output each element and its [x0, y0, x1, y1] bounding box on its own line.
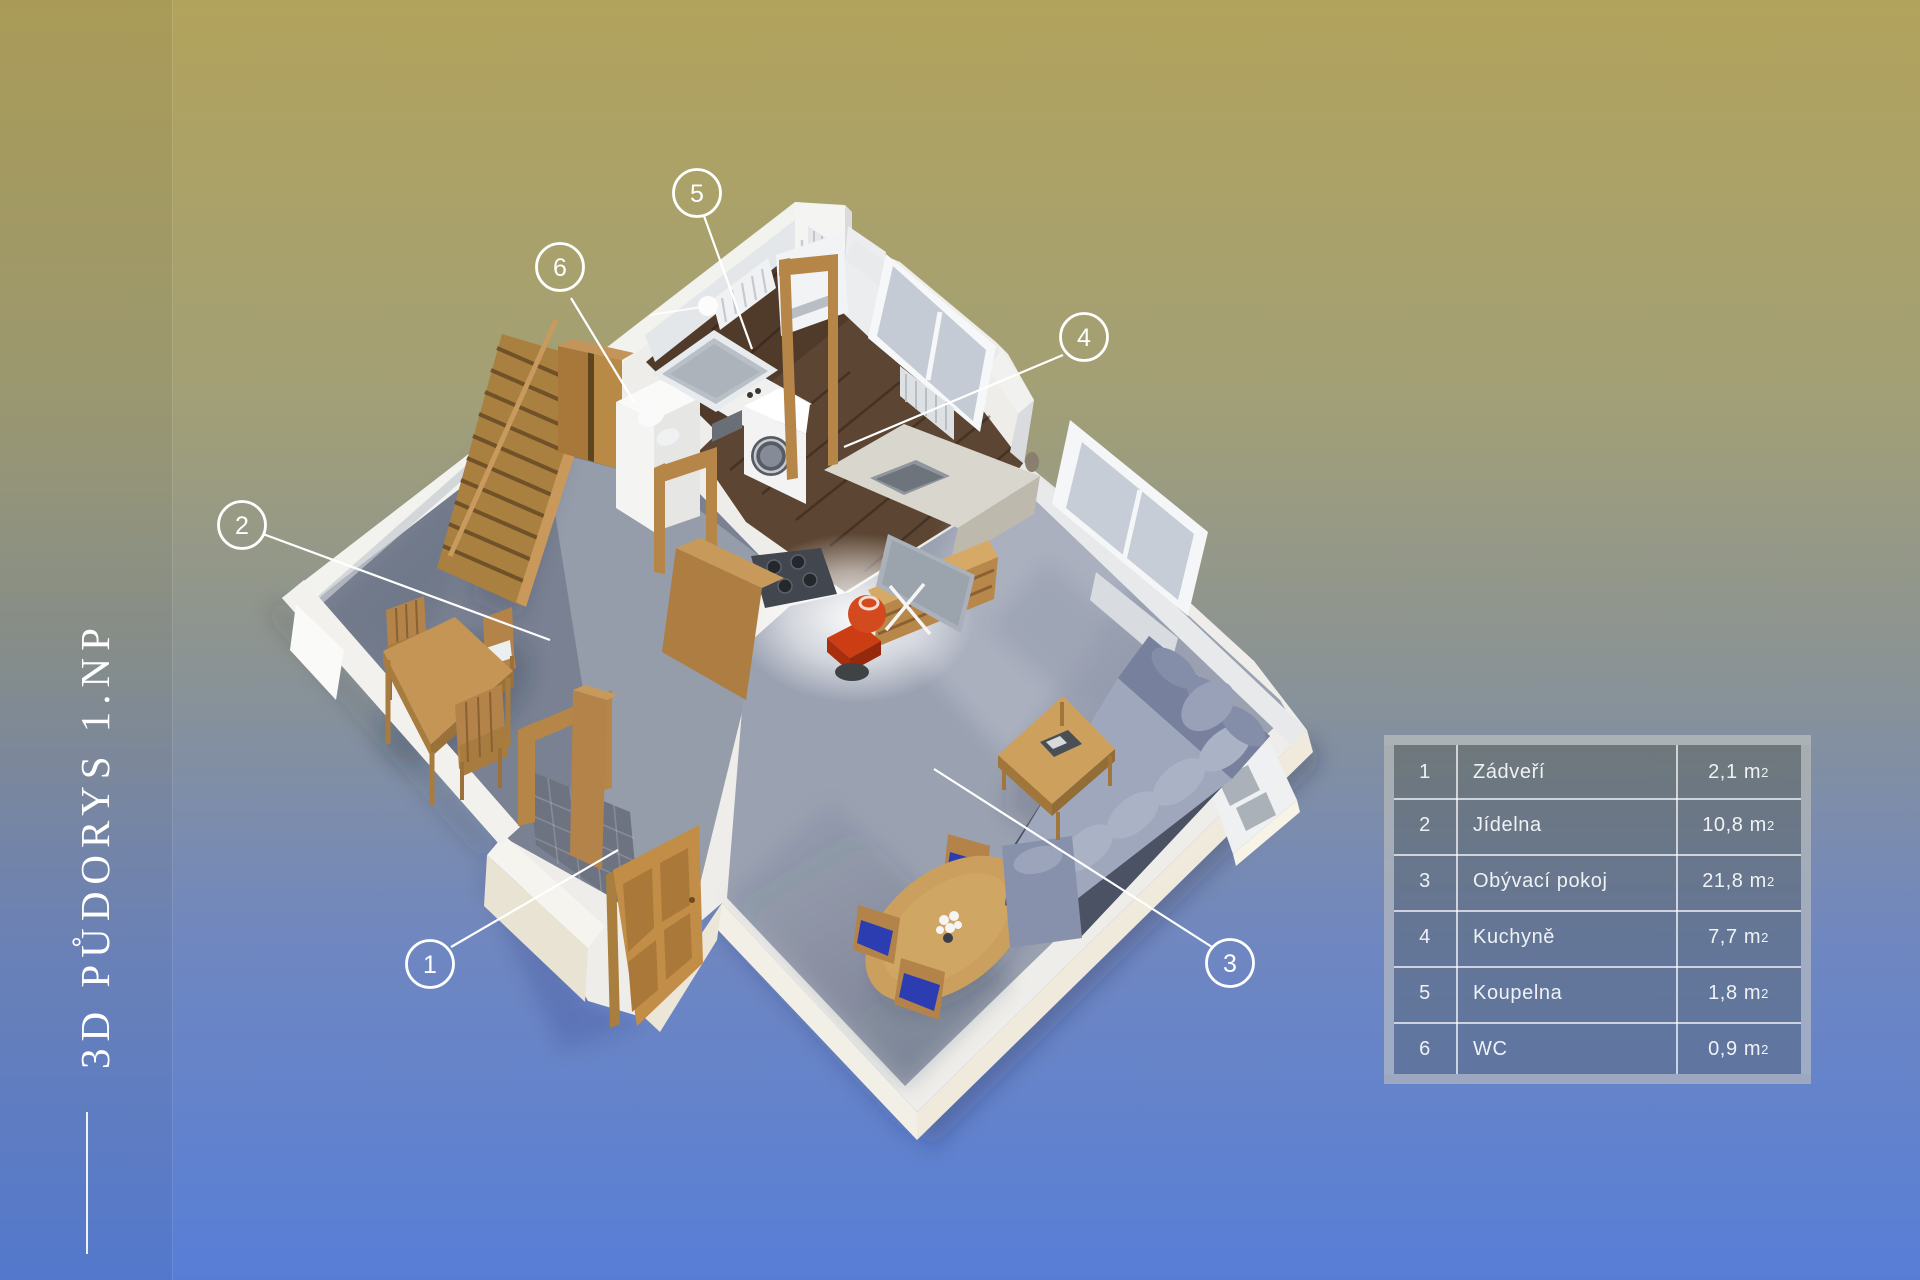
- svg-text:2: 2: [235, 512, 249, 540]
- svg-text:4: 4: [1077, 324, 1091, 352]
- svg-text:6: 6: [553, 254, 567, 282]
- svg-text:5: 5: [690, 180, 704, 208]
- svg-text:3: 3: [1223, 950, 1237, 978]
- svg-text:1: 1: [423, 951, 437, 979]
